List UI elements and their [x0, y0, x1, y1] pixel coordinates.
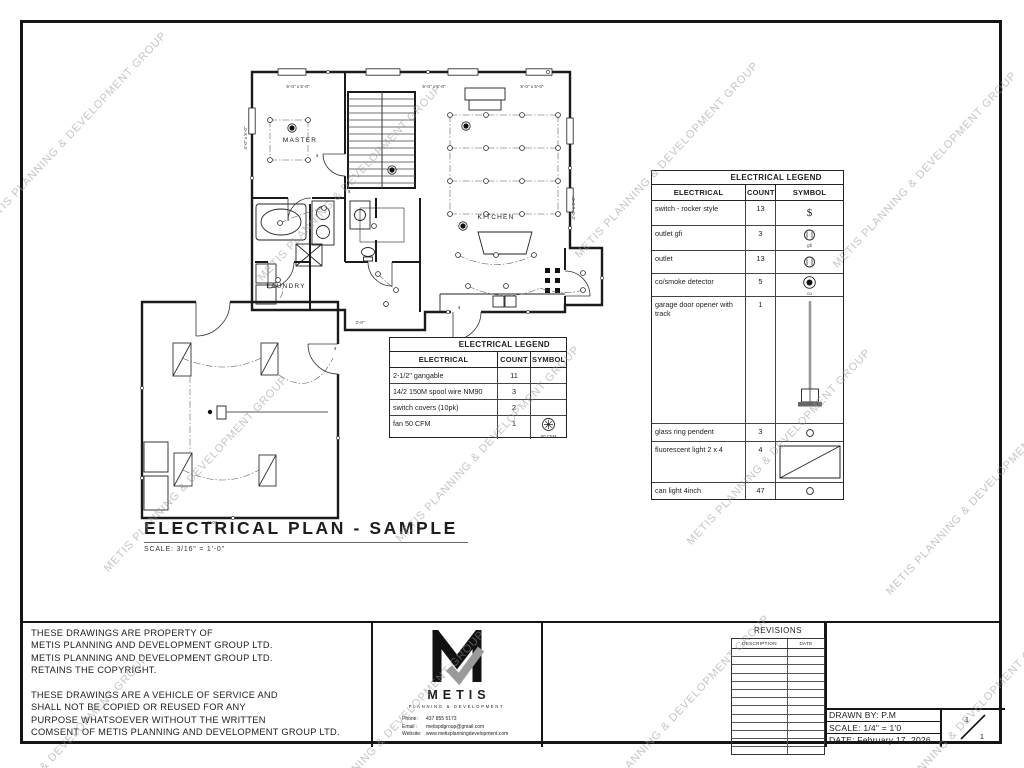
- dim-label: 4'-0" x 5'-0": [571, 196, 576, 220]
- legend-row: outlet gfi3gfi: [652, 226, 843, 251]
- revisions-date-cell: [787, 747, 824, 754]
- drawing-sheet: METIS PLANNING & DEVELOPMENT GROUP METIS…: [0, 0, 1024, 768]
- legend-row: outlet13: [652, 251, 843, 274]
- revisions-date-cell: [787, 715, 824, 722]
- titleblock-row-line: [827, 733, 940, 734]
- legend-count-cell: 5: [745, 274, 775, 296]
- revisions-date-cell: [787, 706, 824, 713]
- revisions-description-cell: [732, 715, 787, 722]
- copyright-line: SHALL NOT BE COPIED OR REUSED FOR ANY: [31, 701, 371, 713]
- legend-item-cell: 14/2 150M spool wire NM90: [390, 384, 497, 399]
- contact-value: metispdgroup@gmail.com: [426, 724, 484, 732]
- legend-row: co/smoke detector5co: [652, 274, 843, 297]
- revisions-description-cell: [732, 731, 787, 738]
- revisions-date-cell: [787, 665, 824, 672]
- revisions-empty-row: [732, 682, 824, 690]
- scale-field: SCALE: 1/4" = 1'0: [829, 723, 901, 733]
- legend-count-cell: 3: [745, 424, 775, 441]
- legend-row: fluorescent light 2 x 44: [652, 442, 843, 483]
- revisions-empty-row: [732, 657, 824, 665]
- legend-item-cell: co/smoke detector: [652, 274, 745, 296]
- revisions-description-cell: [732, 665, 787, 672]
- contact-line: Phone:437 855 5173: [402, 716, 508, 724]
- revisions-body: [732, 649, 824, 754]
- legend-item-cell: 2-1/2" gangable: [390, 368, 497, 383]
- legend-row: 14/2 150M spool wire NM903: [390, 384, 566, 400]
- revisions-description-cell: [732, 723, 787, 730]
- revisions-col-header: DATE: [787, 639, 824, 648]
- revisions-date-cell: [787, 649, 824, 656]
- revisions-description-cell: [732, 747, 787, 754]
- legend-symbol-cell: [775, 424, 843, 441]
- legend-count-cell: 13: [745, 251, 775, 273]
- revisions-col-header: DESCRIPTION: [732, 639, 787, 648]
- legend-row: garage door opener with track1: [652, 297, 843, 424]
- legend-count-cell: 11: [497, 368, 530, 383]
- legend-symbol-cell: [530, 400, 566, 415]
- contact-value: www.metisplanningdevelopment.com: [426, 731, 508, 739]
- symbol-label: 50 CFM: [540, 434, 556, 439]
- legend-item-cell: outlet gfi: [652, 226, 745, 250]
- legend-count-cell: 3: [745, 226, 775, 250]
- legend-body: 2-1/2" gangable1114/2 150M spool wire NM…: [390, 368, 566, 437]
- copyright-line: METIS PLANNING AND DEVELOPMENT GROUP LTD…: [31, 639, 371, 651]
- legend-row: fan 50 CFM150 CFM: [390, 416, 566, 437]
- revisions-empty-row: [732, 698, 824, 706]
- revisions-date-cell: [787, 657, 824, 664]
- dim-label: 5'-0" x 5'-0": [520, 84, 544, 89]
- floor-plan: $$$$ 5'-0" x 5'-0" 5'-0" x 5'-0" 5'-0" x…: [128, 58, 618, 528]
- copyright-line: [31, 677, 371, 689]
- revisions-description-cell: [732, 706, 787, 713]
- revisions-empty-row: [732, 739, 824, 747]
- contact-label: Website:: [402, 731, 426, 739]
- logo-tagline: PLANNING & DEVELOPMENT: [372, 704, 541, 709]
- legend-item-cell: switch - rocker style: [652, 201, 745, 225]
- interior-walls: [252, 72, 565, 312]
- legend-body: switch - rocker style13$outlet gfi3gfiou…: [652, 201, 843, 499]
- dim-label: 4'-0" x 5'-0": [243, 126, 248, 150]
- wall-outlets: [140, 70, 603, 519]
- legend-item-cell: fan 50 CFM: [390, 416, 497, 439]
- exterior-walls: [142, 72, 602, 518]
- plan-title: ELECTRICAL PLAN - SAMPLE: [144, 518, 468, 543]
- drawn-by-field: DRAWN BY: P.M: [829, 710, 896, 720]
- contact-info: Phone:437 855 5173Email :metispdgroup@gm…: [402, 716, 508, 739]
- legend-symbol-cell: [775, 297, 843, 423]
- legend-col-header: ELECTRICAL: [390, 352, 497, 367]
- dim-label: 5'-0" x 5'-0": [422, 84, 446, 89]
- revisions-empty-row: [732, 706, 824, 714]
- legend-table-materials: ELECTRICAL LEGEND ELECTRICALCOUNTSYMBOL …: [389, 337, 567, 438]
- legend-count-cell: 13: [745, 201, 775, 225]
- contact-line: Email :metispdgroup@gmail.com: [402, 724, 508, 732]
- legend-symbol-cell: [530, 384, 566, 399]
- revisions-empty-row: [732, 715, 824, 723]
- legend-symbol-cell: $: [775, 201, 843, 225]
- metis-logo-icon: [429, 630, 485, 688]
- legend-count-cell: 1: [497, 416, 530, 439]
- sheet-number-top: 1: [965, 717, 969, 724]
- copyright-line: THESE DRAWINGS ARE PROPERTY OF: [31, 627, 371, 639]
- plan-title-block: ELECTRICAL PLAN - SAMPLE SCALE: 3/16" = …: [144, 518, 468, 553]
- revisions-date-cell: [787, 731, 824, 738]
- legend-row: can light 4inch47: [652, 483, 843, 499]
- legend-symbol-cell: gfi: [775, 226, 843, 250]
- legend-symbol-cell: 50 CFM: [530, 416, 566, 439]
- contact-value: 437 855 5173: [426, 716, 457, 724]
- company-logo-block: METIS PLANNING & DEVELOPMENT Phone:437 8…: [372, 622, 541, 746]
- room-label-kitchen: KITCHEN: [478, 214, 515, 221]
- revisions-date-cell: [787, 682, 824, 689]
- symbol-label: gfi: [807, 243, 812, 248]
- contact-label: Phone:: [402, 716, 426, 724]
- legend-header-row: ELECTRICALCOUNTSYMBOL: [390, 352, 566, 368]
- revisions-empty-row: [732, 747, 824, 754]
- revisions-description-cell: [732, 682, 787, 689]
- dim-label: 5'-0" x 5'-0": [286, 84, 310, 89]
- copyright-notice: THESE DRAWINGS ARE PROPERTY OFMETIS PLAN…: [31, 627, 371, 739]
- legend-symbol-cell: [530, 368, 566, 383]
- garage-door-opener: [208, 406, 328, 419]
- legend-col-header: ELECTRICAL: [652, 185, 745, 200]
- logo-name: METIS: [372, 688, 541, 702]
- legend-col-header: COUNT: [745, 185, 775, 200]
- revisions-empty-row: [732, 649, 824, 657]
- legend-col-header: SYMBOL: [775, 185, 843, 200]
- contact-label: Email :: [402, 724, 426, 732]
- legend-symbol-cell: [775, 442, 843, 482]
- legend-item-cell: glass ring pendent: [652, 424, 745, 441]
- sheet-number-bottom: 1: [980, 734, 984, 741]
- legend-row: switch - rocker style13$: [652, 201, 843, 226]
- revisions-description-cell: [732, 674, 787, 681]
- legend-count-cell: 2: [497, 400, 530, 415]
- sheet-number-box: 1 1: [941, 709, 1003, 745]
- copyright-line: THESE DRAWINGS ARE A VEHICLE OF SERVICE …: [31, 689, 371, 701]
- revisions-empty-row: [732, 731, 824, 739]
- legend-header-row: ELECTRICALCOUNTSYMBOL: [652, 185, 843, 201]
- revisions-empty-row: [732, 665, 824, 673]
- revisions-description-cell: [732, 739, 787, 746]
- legend-col-header: SYMBOL: [530, 352, 566, 367]
- legend-item-cell: garage door opener with track: [652, 297, 745, 423]
- revisions-header: DESCRIPTIONDATE: [732, 639, 824, 649]
- revisions-date-cell: [787, 674, 824, 681]
- svg-text:$: $: [316, 153, 319, 158]
- legend-item-cell: can light 4inch: [652, 483, 745, 499]
- legend-symbol-cell: [775, 483, 843, 499]
- legend-symbol-cell: [775, 251, 843, 273]
- room-label-master: MASTER: [283, 137, 317, 144]
- contact-line: Website:www.metisplanningdevelopment.com: [402, 731, 508, 739]
- room-label-laundry: LAUNDRY: [266, 283, 305, 290]
- revisions-empty-row: [732, 723, 824, 731]
- stairs: [348, 92, 415, 188]
- revisions-grid: DESCRIPTIONDATE: [731, 638, 825, 755]
- revisions-date-cell: [787, 739, 824, 746]
- legend-col-header: COUNT: [497, 352, 530, 367]
- legend-item-cell: outlet: [652, 251, 745, 273]
- plan-scale-note: SCALE: 3/16" = 1'-0": [144, 546, 468, 553]
- room-labels: MASTER KITCHEN LAUNDRY: [266, 137, 514, 290]
- legend-item-cell: fluorescent light 2 x 4: [652, 442, 745, 482]
- legend-title: ELECTRICAL LEGEND: [390, 338, 566, 352]
- revisions-description-cell: [732, 649, 787, 656]
- legend-item-cell: switch covers (10pk): [390, 400, 497, 415]
- revisions-date-cell: [787, 690, 824, 697]
- legend-row: 2-1/2" gangable11: [390, 368, 566, 384]
- revisions-description-cell: [732, 690, 787, 697]
- revisions-empty-row: [732, 674, 824, 682]
- legend-table-symbols: ELECTRICAL LEGEND ELECTRICALCOUNTSYMBOL …: [651, 170, 844, 500]
- copyright-line: METIS PLANNING AND DEVELOPMENT GROUP LTD…: [31, 652, 371, 664]
- revisions-date-cell: [787, 698, 824, 705]
- revisions-table: REVISIONS DESCRIPTIONDATE: [731, 626, 825, 755]
- legend-title: ELECTRICAL LEGEND: [652, 171, 843, 185]
- legend-count-cell: 1: [745, 297, 775, 423]
- legend-count-cell: 47: [745, 483, 775, 499]
- legend-row: glass ring pendent3: [652, 424, 843, 442]
- titleblock-divider: [541, 621, 543, 747]
- dim-label: 3'-0": [355, 320, 365, 325]
- copyright-line: COMSENT OF METIS PLANNING AND DEVELOPMEN…: [31, 726, 371, 738]
- revisions-date-cell: [787, 723, 824, 730]
- stove-burners: [545, 268, 560, 293]
- legend-symbol-cell: co: [775, 274, 843, 296]
- date-field: DATE: February 17, 2026: [829, 735, 931, 745]
- revisions-empty-row: [732, 690, 824, 698]
- revisions-description-cell: [732, 657, 787, 664]
- legend-count-cell: 3: [497, 384, 530, 399]
- svg-text:$: $: [348, 189, 351, 194]
- copyright-line: PURPOSE WHATSOEVER WITHOUT THE WRITTEN: [31, 714, 371, 726]
- revisions-title: REVISIONS: [731, 626, 825, 635]
- legend-count-cell: 4: [745, 442, 775, 482]
- legend-row: switch covers (10pk)2: [390, 400, 566, 416]
- copyright-line: RETAINS THE COPYRIGHT.: [31, 664, 371, 676]
- symbol-label: co: [807, 291, 812, 296]
- revisions-description-cell: [732, 698, 787, 705]
